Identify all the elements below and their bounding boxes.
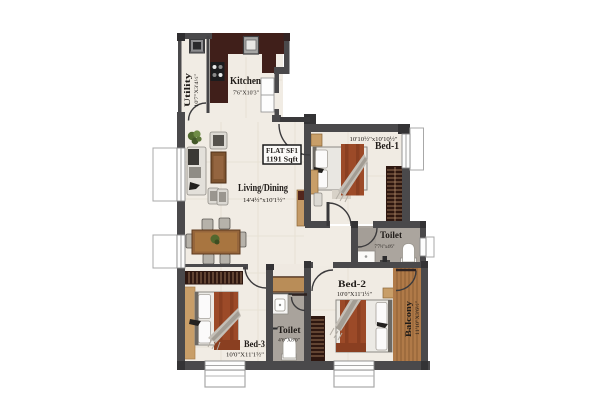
svg-text:Kitchen: Kitchen [230, 76, 261, 87]
svg-text:Bed-2: Bed-2 [338, 280, 366, 290]
svg-text:11'10"X3'6½": 11'10"X3'6½" [416, 301, 421, 335]
svg-text:10'0"X11'1½": 10'0"X11'1½" [226, 352, 264, 359]
svg-text:Living/Dining: Living/Dining [238, 182, 288, 194]
svg-text:1191 Sqft: 1191 Sqft [266, 155, 298, 164]
svg-text:Bed-1: Bed-1 [375, 141, 399, 152]
svg-text:10'7"X3'4½": 10'7"X3'4½" [193, 74, 200, 107]
svg-text:Utility: Utility [182, 72, 192, 107]
svg-text:7'6"X10'3": 7'6"X10'3" [233, 91, 260, 97]
svg-text:10'0"X11'1½": 10'0"X11'1½" [337, 291, 372, 298]
svg-text:Balcony: Balcony [404, 301, 413, 337]
svg-text:Bed-3: Bed-3 [244, 340, 265, 350]
svg-text:Toilet: Toilet [278, 325, 301, 335]
svg-text:4'6"X8'0": 4'6"X8'0" [278, 338, 300, 344]
svg-text:7'7½"x4'6": 7'7½"x4'6" [375, 243, 395, 250]
svg-text:Toilet: Toilet [380, 230, 402, 240]
svg-text:14'4½"x10'1½": 14'4½"x10'1½" [243, 197, 286, 204]
